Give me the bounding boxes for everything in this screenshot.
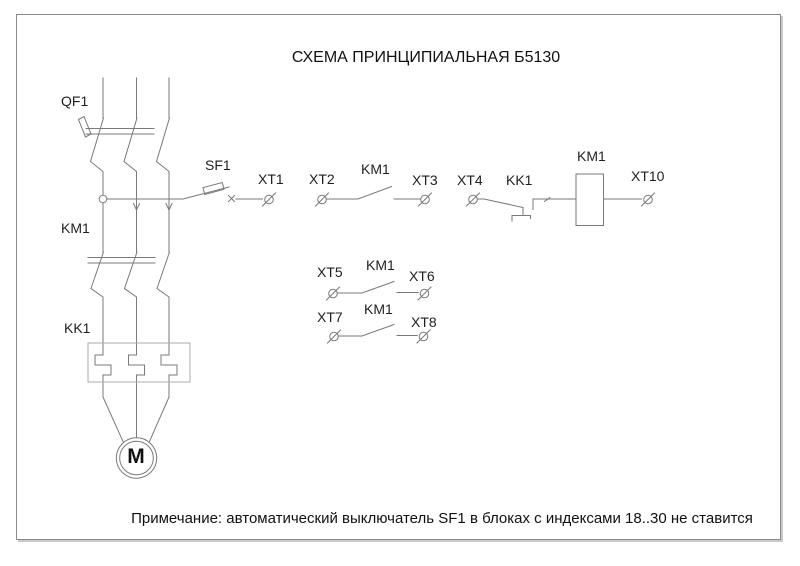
km1-no-contact-1 xyxy=(326,187,420,200)
schematic-page: СХЕМА ПРИНЦИПИАЛЬНАЯ Б5130 QF1 KM1 KK1 S… xyxy=(0,0,800,566)
xt1-label: XT1 xyxy=(258,172,284,186)
terminal-xt8 xyxy=(417,330,430,343)
xt6-label: XT6 xyxy=(409,269,435,283)
schematic-title: СХЕМА ПРИНЦИПИАЛЬНАЯ Б5130 xyxy=(292,49,560,66)
km1-no-contact-3 xyxy=(338,325,417,337)
km1-no-contact-2 xyxy=(337,282,418,294)
km1-contact2-label: KM1 xyxy=(366,258,395,272)
terminal-xt1 xyxy=(263,193,276,206)
xt2-label: XT2 xyxy=(309,172,335,186)
qf1-breaker-symbol xyxy=(79,78,170,252)
terminal-xt6 xyxy=(418,287,431,300)
km1-main-label: KM1 xyxy=(61,221,90,235)
xt4-label: XT4 xyxy=(457,173,483,187)
km1-contact3-label: KM1 xyxy=(364,302,393,316)
schematic-canvas xyxy=(0,0,800,566)
km1-coil-label: KM1 xyxy=(577,149,606,163)
xt5-label: XT5 xyxy=(317,265,343,279)
xt10-label: XT10 xyxy=(631,169,664,183)
terminal-xt3 xyxy=(419,193,432,206)
motor-letter: M xyxy=(127,445,145,469)
xt3-label: XT3 xyxy=(412,173,438,187)
sf1-breaker-symbol xyxy=(183,183,263,202)
terminal-xt10 xyxy=(642,193,655,206)
km1-contactor-symbol xyxy=(88,252,177,442)
kk1-contact-label: KK1 xyxy=(506,173,532,187)
xt7-label: XT7 xyxy=(317,310,343,324)
note-text: Примечание: автоматический выключатель S… xyxy=(131,511,753,527)
power-tap-line xyxy=(99,195,183,210)
qf1-label: QF1 xyxy=(61,94,88,108)
kk1-main-label: KK1 xyxy=(64,321,90,335)
xt8-label: XT8 xyxy=(411,315,437,329)
sf1-label: SF1 xyxy=(205,158,231,172)
kk1-nc-contact xyxy=(477,198,576,222)
km1-contact1-label: KM1 xyxy=(361,162,390,176)
